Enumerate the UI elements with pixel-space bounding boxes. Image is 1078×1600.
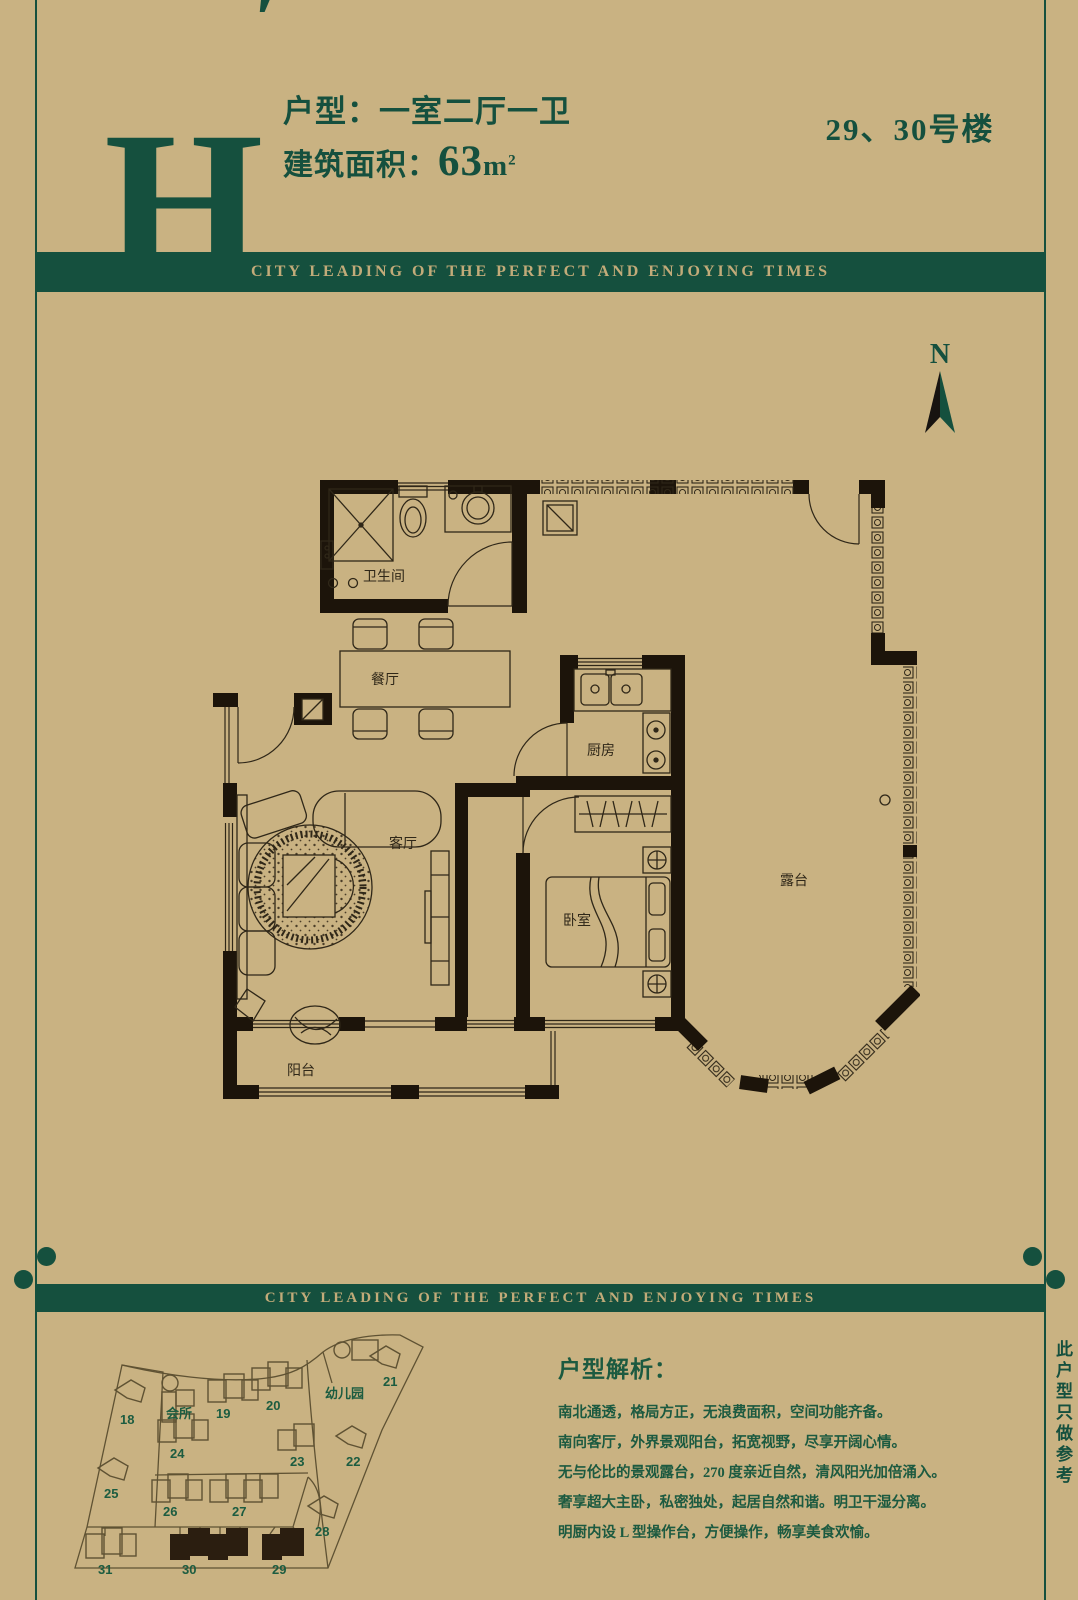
svg-text:29: 29 <box>272 1562 286 1577</box>
north-compass: N <box>903 333 975 438</box>
unit-area-line: 建筑面积：63m2 <box>283 137 571 186</box>
site-buildings <box>86 1340 400 1558</box>
side-note: 此户型只做参考 <box>1050 1340 1075 1487</box>
svg-text:28: 28 <box>315 1524 329 1539</box>
analysis-line: 奢享超大主卧，私密独处，起居自然和谐。明卫干湿分离。 <box>558 1488 958 1518</box>
analysis-heading: 户型解析： <box>558 1350 958 1384</box>
poster-canvas: H′ 户型：一室二厅一卫 建筑面积：63m2 29、30号楼 CITY LEAD… <box>0 0 1078 1600</box>
site-plan: 18 会所 19 20 幼儿园 21 22 23 24 25 26 27 28 … <box>70 1328 450 1590</box>
svg-text:22: 22 <box>346 1454 360 1469</box>
svg-text:27: 27 <box>232 1504 246 1519</box>
label-balcony: 阳台 <box>287 1063 315 1079</box>
label-bedroom: 卧室 <box>563 912 591 929</box>
analysis-block: 户型解析： 南北通透，格局方正，无浪费面积，空间功能齐备。 南向客厅，外界景观阳… <box>558 1350 958 1548</box>
site-buildings-highlighted <box>170 1528 304 1560</box>
svg-text:18: 18 <box>120 1412 134 1427</box>
building-number: 29、30号楼 <box>780 104 1040 149</box>
svg-text:会所: 会所 <box>166 1406 192 1421</box>
site-roads <box>75 1335 423 1568</box>
bottom-banner: CITY LEADING OF THE PERFECT AND ENJOYING… <box>36 1284 1045 1312</box>
svg-text:20: 20 <box>266 1398 280 1413</box>
unit-type-line: 户型：一室二厅一卫 <box>283 86 571 131</box>
svg-text:30: 30 <box>182 1562 196 1577</box>
floor-plan: 卫生间 餐厅 厨房 客厅 卧室 露台 阳台 <box>195 455 920 1115</box>
deco-circle <box>1023 1247 1042 1266</box>
north-label: N <box>930 339 950 370</box>
label-living: 客厅 <box>389 835 417 852</box>
compass-arrow-right <box>940 371 955 433</box>
unit-letter-prime: ′ <box>253 0 276 73</box>
deco-circle <box>14 1270 33 1289</box>
room-labels: 卫生间 餐厅 厨房 客厅 卧室 露台 阳台 <box>287 569 808 1079</box>
label-terrace: 露台 <box>780 873 808 889</box>
deco-circle <box>37 1247 56 1266</box>
svg-text:19: 19 <box>216 1406 230 1421</box>
unit-info: 户型：一室二厅一卫 建筑面积：63m2 <box>283 86 571 186</box>
svg-text:31: 31 <box>98 1562 112 1577</box>
right-frame-line <box>1044 0 1046 1600</box>
label-kitchen: 厨房 <box>587 743 615 759</box>
label-dining: 餐厅 <box>371 672 399 688</box>
svg-text:23: 23 <box>290 1454 304 1469</box>
svg-text:幼儿园: 幼儿园 <box>325 1386 364 1401</box>
analysis-line: 无与伦比的景观露台，270 度亲近自然，清风阳光加倍涌入。 <box>558 1458 958 1488</box>
svg-text:26: 26 <box>163 1504 177 1519</box>
top-banner: CITY LEADING OF THE PERFECT AND ENJOYING… <box>36 252 1045 292</box>
svg-text:24: 24 <box>170 1446 185 1461</box>
analysis-line: 南向客厅，外界景观阳台，拓宽视野，尽享开阔心情。 <box>558 1428 958 1458</box>
label-bathroom: 卫生间 <box>363 569 405 585</box>
svg-text:21: 21 <box>383 1374 397 1389</box>
compass-arrow-left <box>925 371 940 433</box>
svg-text:25: 25 <box>104 1486 118 1501</box>
deco-circle <box>1046 1270 1065 1289</box>
analysis-line: 明厨内设 L 型操作台，方便操作，畅享美食欢愉。 <box>558 1518 958 1548</box>
left-frame-line <box>35 0 37 1600</box>
analysis-line: 南北通透，格局方正，无浪费面积，空间功能齐备。 <box>558 1398 958 1428</box>
